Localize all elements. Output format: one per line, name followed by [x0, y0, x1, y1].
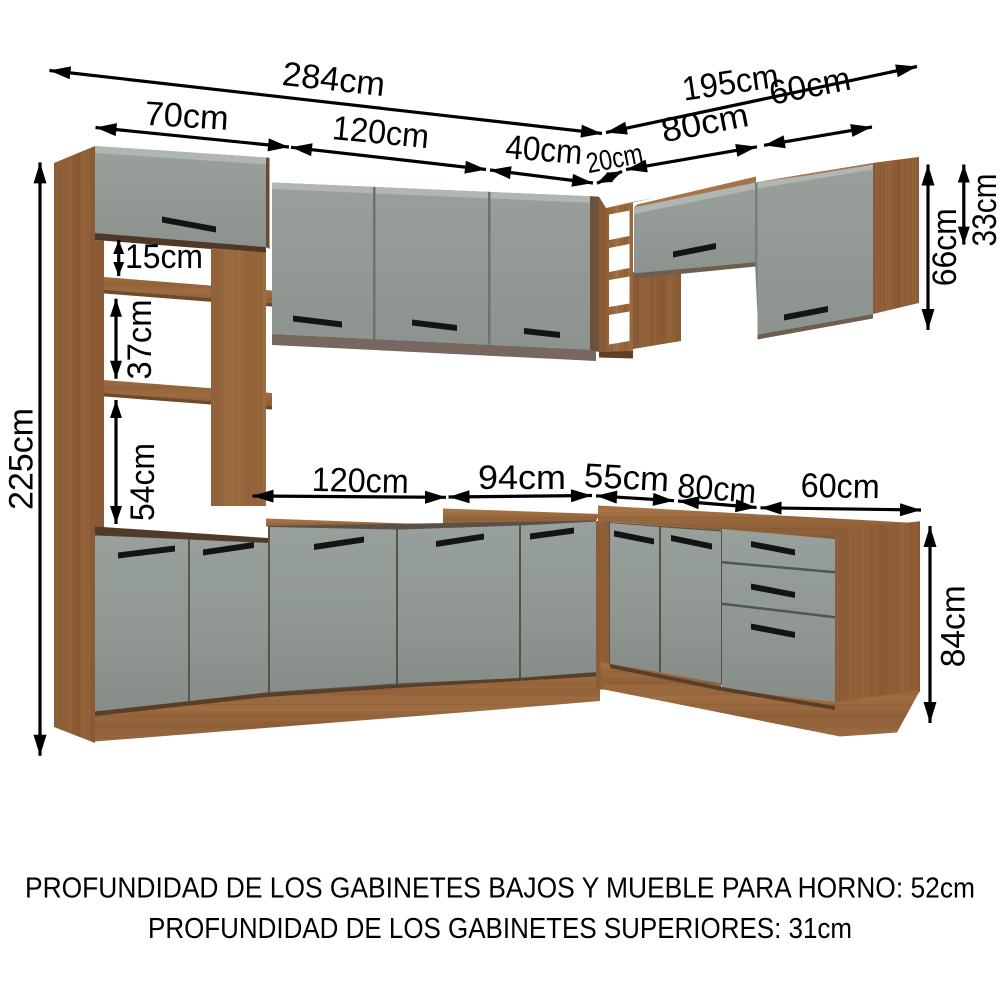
svg-text:54cm: 54cm [124, 443, 162, 521]
svg-text:225cm: 225cm [3, 408, 41, 510]
svg-text:55cm: 55cm [583, 457, 670, 499]
svg-text:80cm: 80cm [676, 467, 758, 511]
svg-text:120cm: 120cm [311, 461, 409, 501]
svg-text:PROFUNDIDAD DE LOS GABINETES B: PROFUNDIDAD DE LOS GABINETES BAJOS Y MUE… [25, 873, 975, 905]
svg-text:70cm: 70cm [144, 95, 230, 138]
svg-text:60cm: 60cm [800, 467, 880, 506]
svg-text:33cm: 33cm [966, 174, 1000, 247]
svg-text:94cm: 94cm [478, 459, 566, 497]
svg-text:84cm: 84cm [935, 585, 973, 667]
svg-text:40cm: 40cm [504, 128, 584, 172]
svg-text:66cm: 66cm [926, 208, 964, 286]
svg-text:15cm: 15cm [125, 238, 203, 276]
svg-text:37cm: 37cm [121, 300, 159, 380]
svg-text:PROFUNDIDAD DE LOS GABINETES S: PROFUNDIDAD DE LOS GABINETES SUPERIORES:… [148, 913, 852, 945]
